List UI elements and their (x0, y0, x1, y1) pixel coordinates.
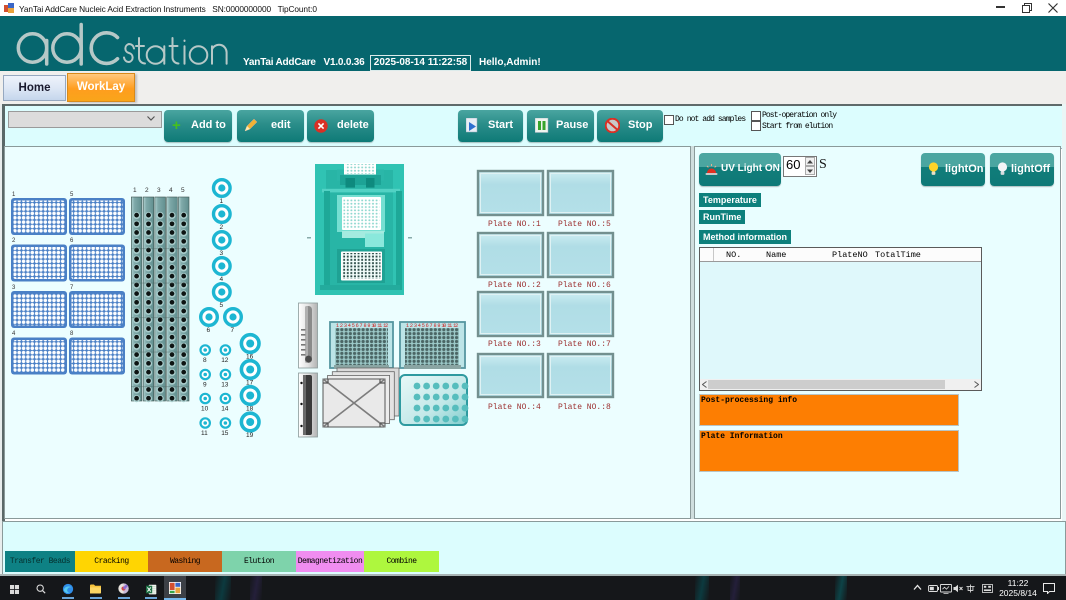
svg-text:8: 8 (203, 357, 207, 364)
svg-text:11: 11 (201, 430, 208, 437)
svg-text:Plate NO.:5: Plate NO.:5 (558, 220, 611, 229)
svg-text:Plate NO.:6: Plate NO.:6 (558, 281, 611, 290)
svg-text:1: 1 (133, 187, 137, 194)
svg-text:Plate NO.:7: Plate NO.:7 (558, 340, 611, 349)
svg-text:1 2 3 4 5 6 7 8 9 10 11 12: 1 2 3 4 5 6 7 8 9 10 11 12 (336, 323, 388, 329)
svg-text:5: 5 (181, 187, 185, 194)
svg-text:2: 2 (220, 224, 224, 231)
svg-text:5: 5 (220, 302, 224, 309)
svg-text:3: 3 (220, 250, 224, 257)
svg-text:11:22: 11:22 (1008, 578, 1029, 588)
svg-text:9: 9 (203, 382, 207, 389)
svg-text:Plate NO.:1: Plate NO.:1 (488, 220, 541, 229)
svg-text:7: 7 (231, 327, 235, 334)
svg-text:12: 12 (221, 357, 229, 364)
svg-text:6: 6 (207, 327, 211, 334)
svg-text:14: 14 (221, 406, 229, 413)
svg-text:Plate NO.:4: Plate NO.:4 (488, 403, 541, 412)
svg-text:4: 4 (169, 187, 173, 194)
svg-text:Plate NO.:3: Plate NO.:3 (488, 340, 541, 349)
svg-text:1: 1 (220, 198, 224, 205)
svg-text:15: 15 (221, 430, 229, 437)
svg-text:3: 3 (157, 187, 161, 194)
svg-text:13: 13 (221, 382, 229, 389)
svg-text:19: 19 (246, 432, 254, 439)
svg-text:4: 4 (220, 276, 224, 283)
svg-text:10: 10 (201, 406, 209, 413)
svg-text:Plate NO.:8: Plate NO.:8 (558, 403, 611, 412)
svg-text:2025/8/14: 2025/8/14 (999, 588, 1037, 598)
svg-text:2: 2 (145, 187, 149, 194)
svg-text:Plate NO.:2: Plate NO.:2 (488, 281, 541, 290)
svg-text:1 2 3 4 5 6 7 8 9 10 11 12: 1 2 3 4 5 6 7 8 9 10 11 12 (406, 323, 458, 329)
